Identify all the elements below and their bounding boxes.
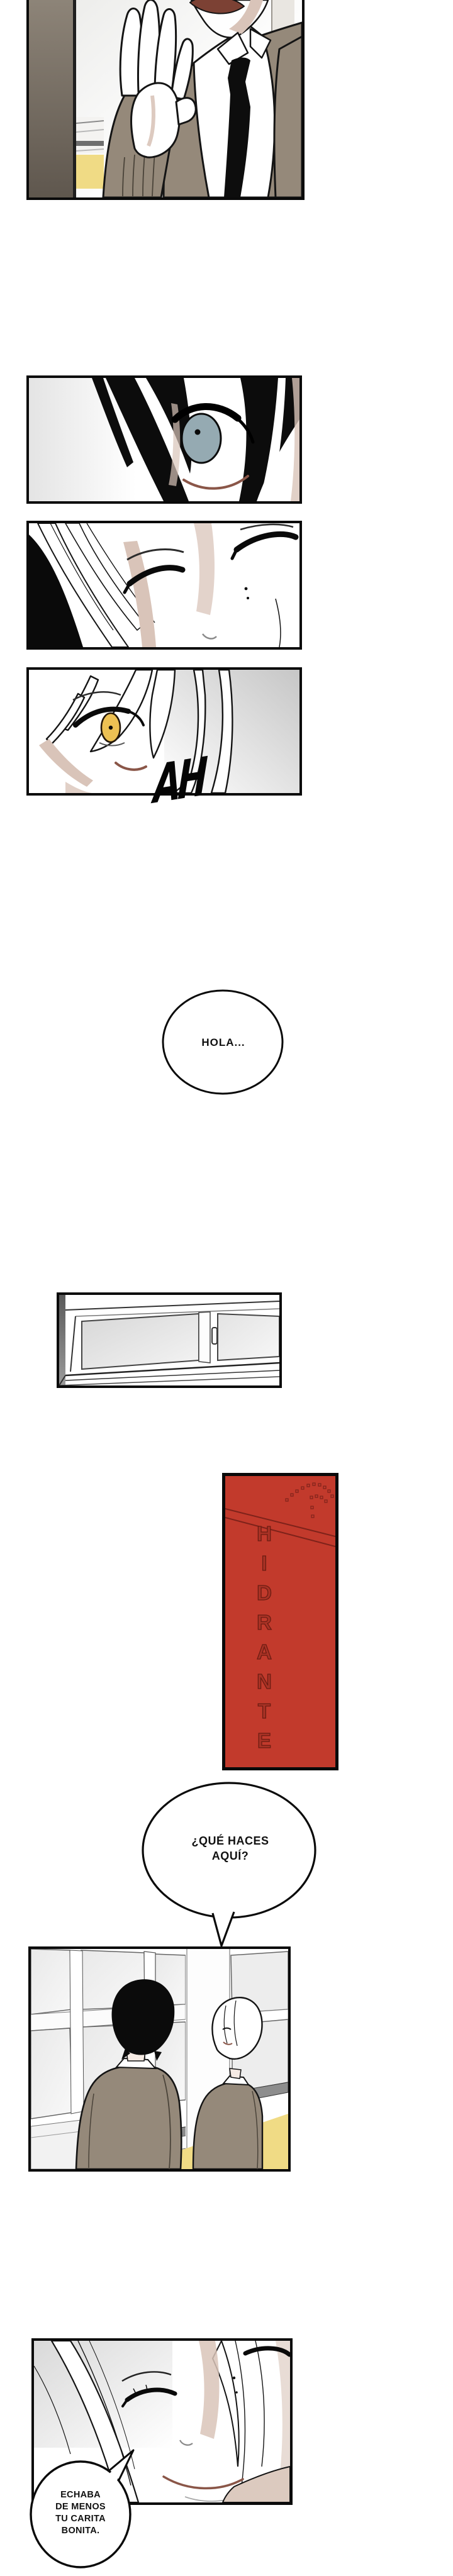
sfx-ah: AH (153, 745, 206, 815)
panel-two-figures (28, 1946, 291, 2172)
panel-wave-art (29, 0, 302, 197)
panel-eye-dark-hair (26, 375, 302, 504)
perforation-dots (286, 1483, 333, 1518)
two-figures-art (31, 1949, 288, 2169)
speech-bubble-echaba (25, 2444, 151, 2576)
webtoon-page: AH HOLA... (0, 0, 453, 2576)
hydrant-sign: HIDRANTE (222, 1473, 338, 1770)
speech-bubble-que-haces (140, 1780, 321, 1948)
yellow-light (76, 155, 104, 189)
panel-closed-eyes (26, 521, 302, 650)
glass-pane-right (218, 1314, 279, 1360)
panel-window (57, 1292, 282, 1388)
mullion (199, 1312, 210, 1363)
hydrant-art (225, 1476, 335, 1767)
hydrant-label: HIDRANTE (249, 1519, 279, 1755)
panel-closed-eyes-art (29, 523, 299, 647)
window-blinds (76, 117, 104, 189)
speech-bubble-hola (160, 987, 286, 1098)
beauty-mark (247, 597, 249, 599)
beauty-mark (245, 587, 248, 591)
window-art (59, 1295, 279, 1385)
panel-eye-art (29, 378, 299, 501)
bubble-tail (213, 1912, 234, 1946)
panel-wave-greeting (26, 0, 305, 200)
window-latch (212, 1328, 217, 1344)
glass-pane-left (82, 1314, 199, 1369)
beauty-mark (233, 2377, 235, 2379)
wall-strip (29, 0, 73, 197)
beauty-mark (235, 2391, 238, 2394)
